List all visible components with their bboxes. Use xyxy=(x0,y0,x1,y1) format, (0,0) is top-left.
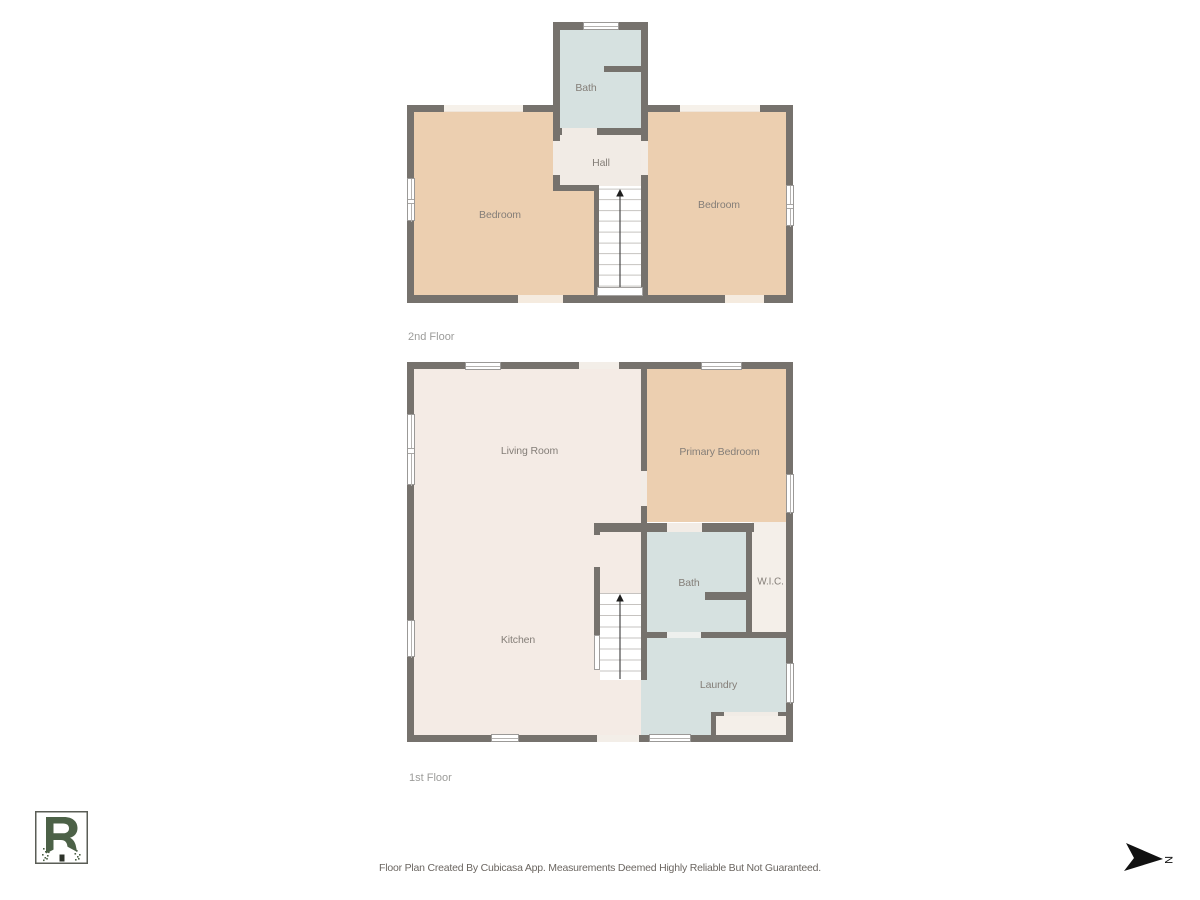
svg-text:N: N xyxy=(1162,856,1174,864)
